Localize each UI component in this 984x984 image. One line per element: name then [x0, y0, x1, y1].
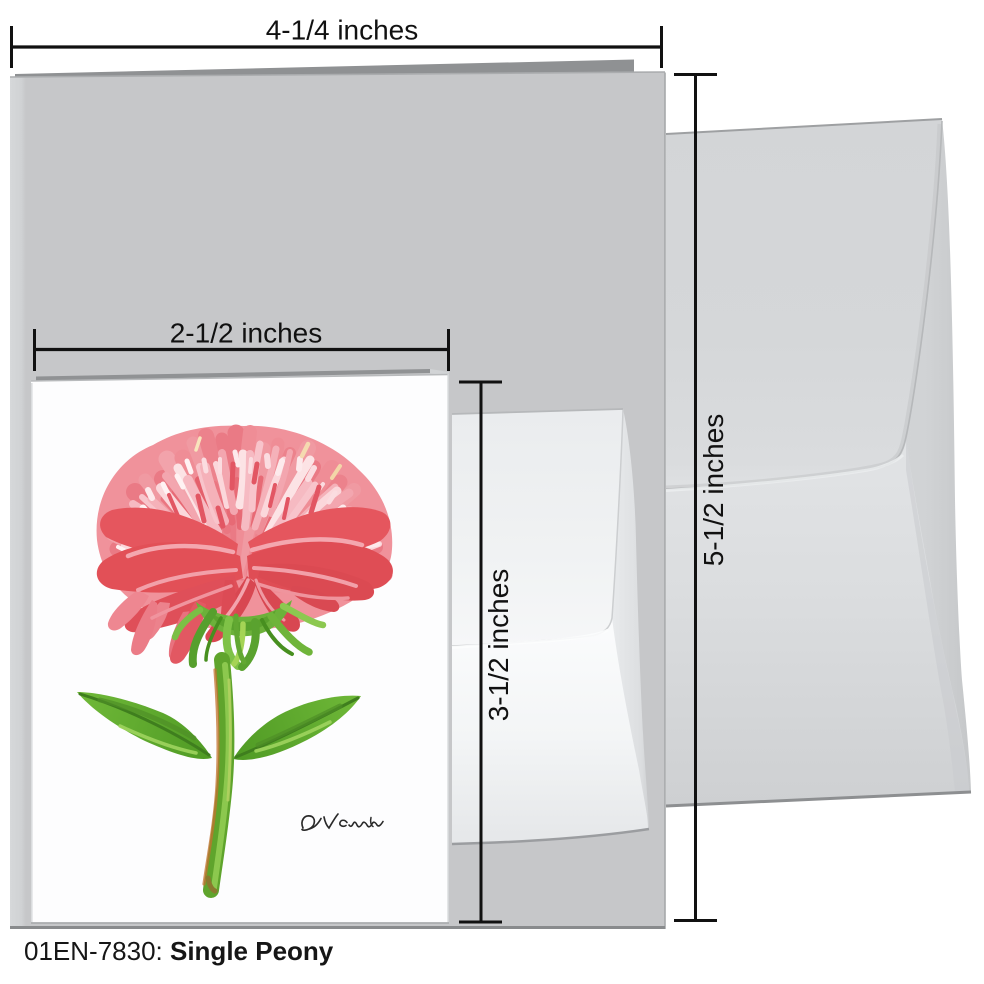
- svg-text:2-1/2 inches: 2-1/2 inches: [170, 318, 323, 349]
- svg-text:4-1/4 inches: 4-1/4 inches: [266, 15, 419, 46]
- svg-text:5-1/2 inches: 5-1/2 inches: [698, 414, 729, 567]
- svg-text:3-1/2 inches: 3-1/2 inches: [483, 569, 514, 722]
- svg-text:01EN-7830: Single Peony: 01EN-7830: Single Peony: [24, 936, 334, 966]
